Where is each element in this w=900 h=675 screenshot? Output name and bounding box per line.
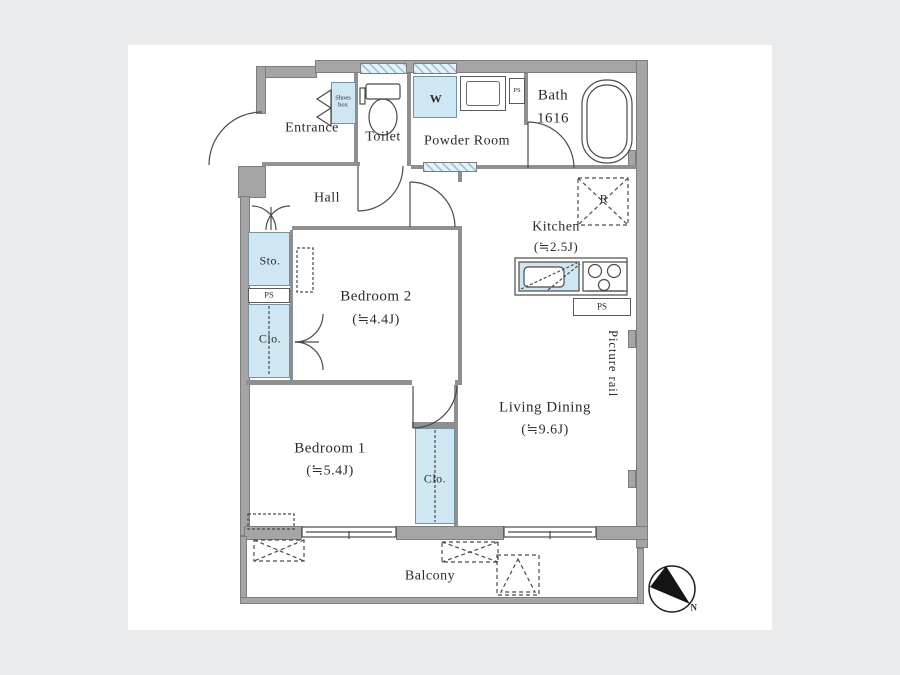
bedroom1-size-label: (≒5.4J) (306, 462, 354, 480)
pipe-space-top-label: PS (513, 87, 520, 95)
storage-label: Sto. (259, 254, 280, 269)
compass-icon (649, 566, 695, 612)
compass-north-label: N (691, 602, 698, 613)
ac-space (248, 514, 294, 529)
balcony-label: Balcony (405, 567, 455, 585)
bathtub-icon (582, 80, 632, 163)
bedroom1-label: Bedroom 1 (294, 440, 366, 459)
closet-bedroom1-label: Clo. (424, 472, 446, 487)
washer-label: W (430, 92, 443, 107)
powder-room-label: Powder Room (424, 132, 510, 150)
pipe-space-kitchen-label: PS (597, 301, 607, 312)
bath-door (528, 122, 574, 168)
closet-left-label: Clo. (259, 332, 281, 347)
toilet-label: Toilet (365, 128, 400, 146)
hall-living-door (410, 182, 455, 227)
balcony-equipment-space (254, 540, 498, 562)
kitchen-counter (515, 258, 627, 295)
stove-icon (583, 262, 627, 291)
kitchen-label: Kitchen (532, 218, 580, 236)
bedroom2-label: Bedroom 2 (340, 288, 412, 307)
storage-double-door (252, 206, 290, 230)
toilet-door (358, 166, 403, 211)
bedroom2-size-label: (≒4.4J) (352, 311, 400, 329)
pipe-space-left-label: PS (264, 290, 273, 301)
living-dining-label: Living Dining (499, 399, 591, 418)
living-dining-size-label: (≒9.6J) (521, 421, 569, 439)
picture-rail-label: Picture rail (605, 330, 620, 397)
entrance-label: Entrance (285, 119, 339, 137)
bedroom1-door (413, 386, 457, 428)
entrance-door (209, 112, 262, 165)
closet-double-door (295, 314, 323, 370)
kitchen-size-label: (≒2.5J) (534, 239, 578, 255)
bath-label: Bath (538, 87, 568, 106)
balcony-window (302, 527, 596, 539)
refrigerator-label: R (600, 192, 609, 207)
ac-space (297, 248, 313, 292)
bath-size-label: 1616 (537, 110, 569, 129)
evacuation-hatch (497, 555, 539, 595)
shoes-box-label: Shoes box (331, 95, 355, 110)
hall-label: Hall (314, 189, 340, 207)
